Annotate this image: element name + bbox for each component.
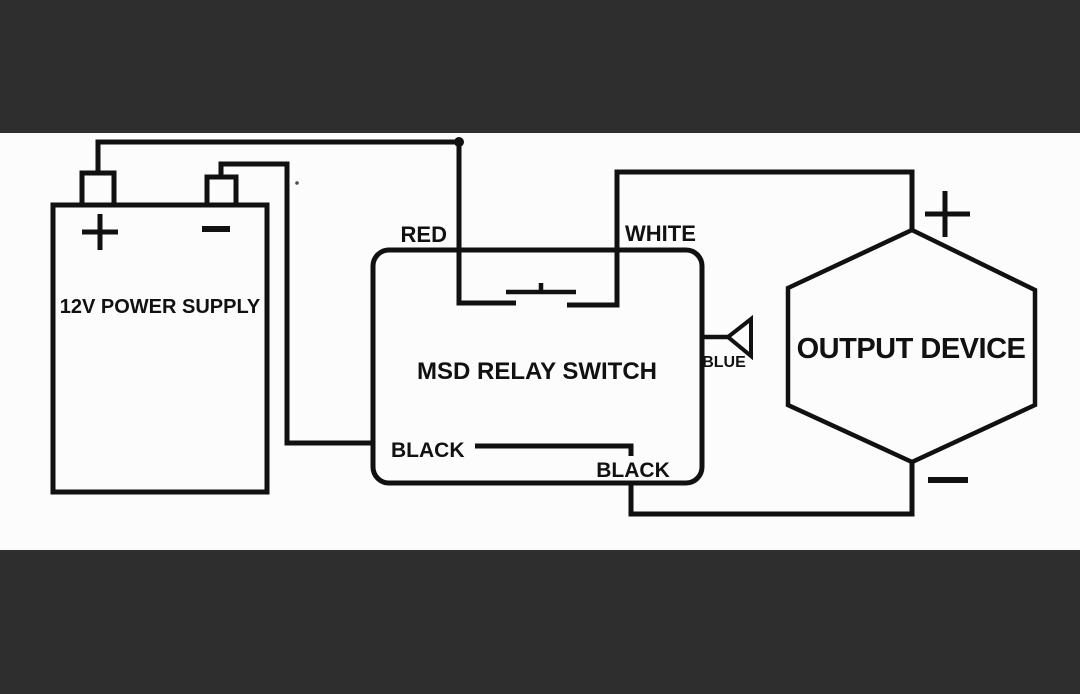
blue-wire-label: BLUE (702, 354, 746, 371)
black-supply-wire-inner (475, 446, 631, 456)
wire-junction-dot (454, 137, 464, 147)
black-ground-wire (631, 462, 912, 514)
power-supply-label: 12V POWER SUPPLY (60, 296, 261, 318)
negative-terminal-post (207, 177, 236, 205)
diagram-canvas: 12V POWER SUPPLY MSD RELAY SWITCH OUTPUT… (0, 0, 1080, 694)
ink-speck (295, 181, 299, 185)
wiring-diagram: 12V POWER SUPPLY MSD RELAY SWITCH OUTPUT… (0, 0, 1080, 694)
positive-terminal-post (82, 173, 114, 205)
plus-icon (925, 191, 970, 237)
black-ground-wire-label: BLACK (596, 459, 670, 482)
red-wire-label: RED (401, 222, 447, 247)
plus-icon (82, 214, 118, 250)
white-wire (567, 172, 912, 305)
blue-wire-arrow-icon (728, 319, 751, 356)
black-supply-wire-label: BLACK (391, 439, 465, 462)
white-wire-label: WHITE (625, 221, 696, 246)
output-device-label: OUTPUT DEVICE (797, 333, 1026, 365)
relay-switch-label: MSD RELAY SWITCH (417, 358, 657, 385)
switch-contact-icon (506, 283, 576, 292)
red-wire (98, 142, 516, 303)
power-supply-box (53, 205, 267, 492)
